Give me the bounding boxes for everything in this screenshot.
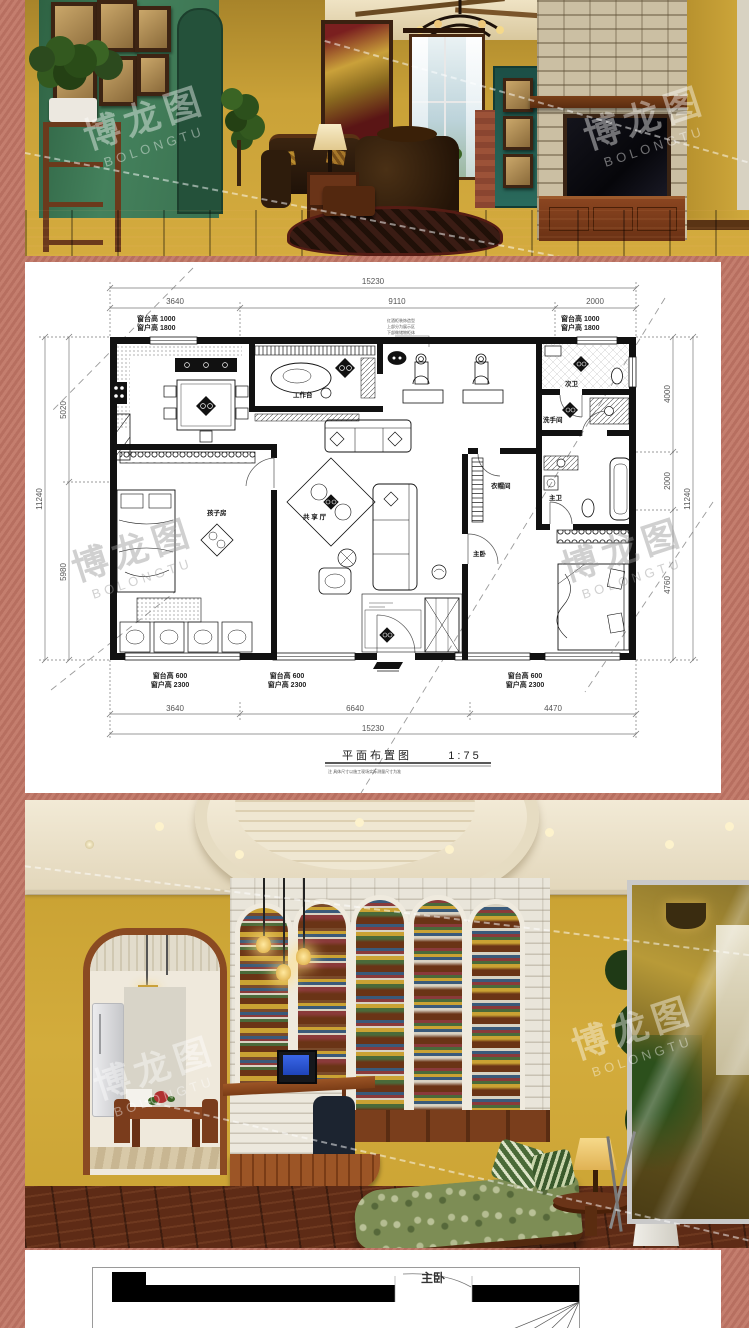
dim-left-total: 11240 bbox=[35, 488, 44, 510]
dim-bottom-seg1: 3640 bbox=[166, 704, 184, 713]
walk-in-closet: 衣帽间 bbox=[472, 458, 511, 522]
window-note: 窗户高 2300 bbox=[506, 680, 545, 689]
annotation-line: 上部分为展示区 bbox=[387, 323, 415, 329]
white-planter bbox=[49, 98, 97, 122]
dim-right-seg1: 4000 bbox=[663, 385, 672, 403]
wood-platform bbox=[230, 1154, 380, 1190]
office-chair bbox=[313, 1096, 355, 1160]
stair-fan-lines bbox=[513, 1302, 579, 1328]
room-label-master-elevation: 主卧 bbox=[421, 1270, 445, 1285]
washroom: 洗手间 bbox=[543, 398, 629, 424]
window-note: 窗户高 2300 bbox=[268, 680, 307, 689]
room-label-wash: 洗手间 bbox=[543, 415, 563, 424]
floor-mirror bbox=[627, 880, 749, 1224]
teal-cabinet bbox=[493, 66, 541, 208]
dimension-lines-top bbox=[107, 282, 639, 337]
recessed-lights bbox=[85, 840, 94, 849]
dim-right-seg3: 4760 bbox=[663, 576, 672, 594]
master-bedroom bbox=[557, 530, 629, 650]
computer-monitor bbox=[277, 1050, 317, 1084]
living-room-photo: 博龙图BOLONGTU 博龙图BOLONGTU bbox=[25, 0, 749, 256]
pendant-lamp bbox=[256, 936, 271, 953]
drawing-frame: 主卧 bbox=[92, 1267, 580, 1328]
room-label-kids: 孩子房 bbox=[207, 508, 227, 517]
plan-title: 平面布置图 bbox=[342, 749, 412, 762]
flower-centerpiece bbox=[154, 1091, 168, 1103]
picture-frame bbox=[97, 0, 137, 52]
room-label-master: 主卧 bbox=[473, 549, 487, 558]
pendant-lamp bbox=[276, 964, 291, 981]
dim-bottom-total: 15230 bbox=[362, 724, 385, 733]
dim-top-seg3: 2000 bbox=[586, 297, 604, 306]
picture-frame bbox=[99, 56, 137, 106]
plan-scale: 1:75 bbox=[448, 750, 481, 762]
workstations bbox=[388, 352, 503, 404]
dim-left-seg1: 5020 bbox=[59, 401, 68, 419]
room-label-desk: 工作台 bbox=[293, 390, 313, 399]
floor-plan-sheet: 15230 3640 9110 2000 窗台高 1000 窗户高 1800 窗… bbox=[25, 262, 721, 793]
brick-column bbox=[475, 110, 495, 208]
dim-right-total: 11240 bbox=[683, 488, 692, 510]
curtain-rod bbox=[403, 28, 485, 33]
dim-top-seg1: 3640 bbox=[166, 297, 184, 306]
window-note: 窗户高 1800 bbox=[137, 323, 176, 332]
window-note: 窗台高 1000 bbox=[561, 314, 600, 323]
page: 博龙图BOLONGTU 博龙图BOLONGTU bbox=[0, 0, 749, 1328]
picture-frame bbox=[137, 54, 169, 96]
bookshelf-niche bbox=[414, 900, 462, 1110]
room-label-hall: 共 享 厅 bbox=[303, 512, 327, 521]
window-note: 窗户高 1800 bbox=[561, 323, 600, 332]
dimension-lines-left bbox=[39, 334, 110, 663]
shared-hall bbox=[287, 420, 446, 594]
kids-room bbox=[117, 452, 255, 652]
window-note: 窗台高 600 bbox=[508, 671, 543, 680]
master-bath: 主卫 bbox=[544, 456, 631, 520]
library-photo: 博龙图BOLONGTU 博龙图BOLONGTU bbox=[25, 800, 749, 1248]
elevation-sheet: 主卧 bbox=[25, 1250, 721, 1328]
plant-foliage bbox=[29, 46, 55, 72]
window-note: 窗台高 600 bbox=[270, 671, 305, 680]
window-note: 窗台高 1000 bbox=[137, 314, 176, 323]
tv-screen bbox=[563, 114, 671, 204]
room-label-closet: 衣帽间 bbox=[491, 481, 511, 490]
window-note: 窗户高 2300 bbox=[151, 680, 190, 689]
dim-bottom-seg3: 4470 bbox=[544, 704, 562, 713]
picture-frame bbox=[135, 6, 171, 52]
dim-top-total: 15230 bbox=[362, 277, 385, 286]
plan-note: 注 具体尺寸以施工现场实际测量尺寸为准 bbox=[328, 768, 401, 774]
dim-bottom-seg2: 6640 bbox=[346, 704, 364, 713]
window-note: 窗台高 600 bbox=[153, 671, 188, 680]
small-tree bbox=[221, 88, 243, 110]
pendant-lamp bbox=[296, 948, 311, 965]
annotation-line: 下部做储物柜体 bbox=[387, 329, 415, 335]
floor-plan-drawing: 15230 3640 9110 2000 窗台高 1000 窗户高 1800 窗… bbox=[25, 262, 721, 793]
second-bath: 次卫 bbox=[542, 344, 629, 388]
elevation-drawing: 主卧 bbox=[93, 1268, 579, 1328]
dining-chair bbox=[114, 1099, 130, 1143]
room-label-master-bath: 主卫 bbox=[549, 493, 563, 502]
dining-chair bbox=[202, 1099, 218, 1143]
dim-right-seg2: 2000 bbox=[663, 472, 672, 490]
annotation-line: 红酒柜装饰造型 bbox=[387, 317, 415, 323]
dim-top-seg2: 9110 bbox=[388, 297, 406, 306]
kitchen-dining bbox=[111, 344, 248, 460]
bookshelf-niche bbox=[472, 904, 520, 1110]
picture-frame bbox=[51, 2, 97, 60]
dim-left-seg2: 5980 bbox=[59, 563, 68, 581]
entry-step-icon bbox=[373, 662, 403, 669]
dining-arch bbox=[83, 928, 227, 1175]
room-label-second-bath: 次卫 bbox=[565, 379, 579, 388]
